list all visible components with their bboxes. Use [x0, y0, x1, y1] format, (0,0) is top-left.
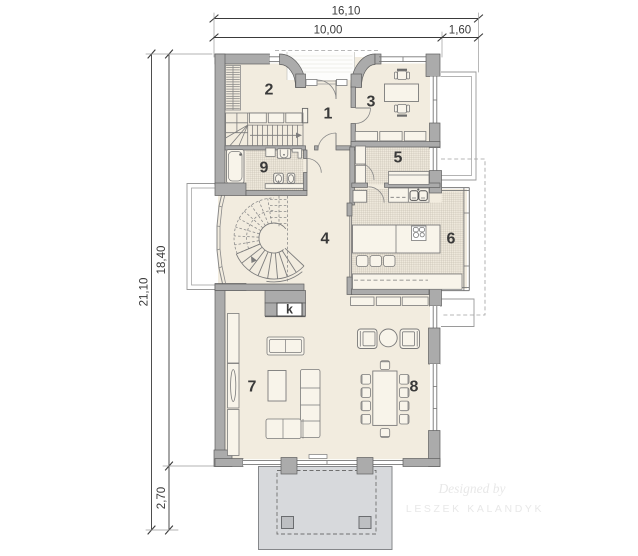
svg-text:18,40: 18,40 [156, 246, 168, 275]
svg-text:6: 6 [447, 231, 456, 248]
svg-text:k: k [286, 303, 293, 317]
svg-text:21,10: 21,10 [139, 278, 151, 307]
svg-text:5: 5 [394, 150, 403, 167]
svg-text:1,60: 1,60 [449, 25, 471, 37]
svg-text:LESZEK KALANDYK: LESZEK KALANDYK [406, 503, 544, 515]
svg-text:2,70: 2,70 [156, 487, 168, 509]
svg-text:7: 7 [248, 379, 257, 396]
svg-text:10,00: 10,00 [314, 25, 343, 37]
svg-text:3: 3 [367, 94, 376, 111]
svg-text:1: 1 [324, 106, 333, 123]
svg-text:4: 4 [321, 231, 330, 248]
svg-text:9: 9 [260, 160, 269, 177]
svg-text:2: 2 [265, 82, 274, 99]
svg-text:8: 8 [410, 379, 419, 396]
svg-text:Designed by: Designed by [437, 481, 505, 496]
svg-text:16,10: 16,10 [332, 6, 361, 18]
